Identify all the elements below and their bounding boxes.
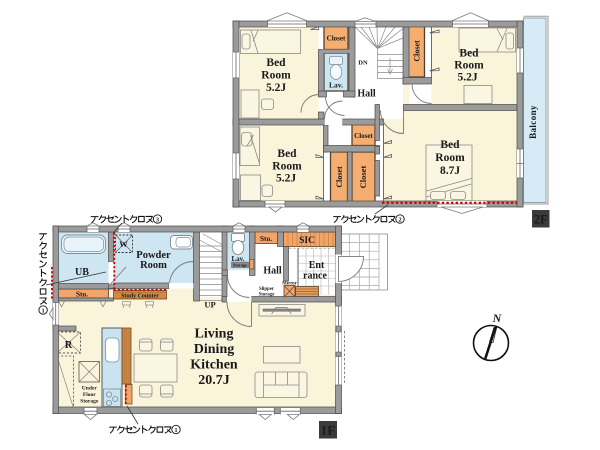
svg-text:Kitchen: Kitchen bbox=[190, 358, 238, 373]
svg-text:Room: Room bbox=[272, 161, 302, 173]
svg-text:5.2J: 5.2J bbox=[266, 82, 286, 94]
svg-text:Ent: Ent bbox=[309, 260, 325, 271]
svg-text:DN: DN bbox=[358, 60, 368, 67]
svg-text:Room: Room bbox=[140, 260, 167, 271]
svg-text:2F: 2F bbox=[534, 213, 548, 227]
svg-text:1F: 1F bbox=[321, 423, 336, 438]
svg-text:Hall: Hall bbox=[263, 266, 282, 277]
svg-text:Closet: Closet bbox=[354, 132, 373, 140]
svg-text:1: 1 bbox=[174, 427, 177, 434]
svg-text:Sto.: Sto. bbox=[76, 289, 88, 298]
svg-text:Living: Living bbox=[195, 327, 234, 342]
svg-text:Closet: Closet bbox=[358, 166, 368, 189]
svg-text:Dining: Dining bbox=[194, 342, 234, 357]
svg-text:8.7J: 8.7J bbox=[440, 165, 460, 177]
svg-text:Storage: Storage bbox=[80, 399, 99, 405]
svg-text:Balcony: Balcony bbox=[528, 105, 538, 139]
svg-text:Floor: Floor bbox=[83, 392, 96, 398]
svg-text:Study Counter: Study Counter bbox=[121, 293, 159, 299]
svg-text:Bed: Bed bbox=[266, 57, 286, 69]
svg-text:Room: Room bbox=[261, 70, 291, 82]
svg-text:Bed: Bed bbox=[277, 148, 297, 160]
svg-text:N: N bbox=[492, 311, 503, 325]
svg-text:5.2J: 5.2J bbox=[276, 173, 296, 185]
svg-text:Room: Room bbox=[435, 152, 465, 164]
svg-text:Slipper: Slipper bbox=[259, 287, 275, 292]
svg-text:Bed: Bed bbox=[440, 139, 460, 151]
svg-text:SIC: SIC bbox=[299, 236, 315, 246]
svg-text:W: W bbox=[119, 239, 128, 249]
svg-text:UP: UP bbox=[204, 300, 215, 310]
svg-text:Bed: Bed bbox=[459, 48, 479, 60]
svg-text:Closet: Closet bbox=[327, 35, 346, 43]
svg-text:Sto.: Sto. bbox=[260, 234, 272, 243]
svg-text:20.7J: 20.7J bbox=[198, 373, 230, 388]
svg-text:5.2J: 5.2J bbox=[457, 72, 477, 84]
svg-text:R: R bbox=[65, 340, 73, 351]
svg-text:2: 2 bbox=[398, 216, 401, 223]
svg-text:Hall: Hall bbox=[357, 89, 376, 100]
svg-text:Lav.: Lav. bbox=[329, 81, 343, 90]
svg-text:rance: rance bbox=[303, 271, 327, 282]
svg-text:Closet: Closet bbox=[413, 40, 422, 62]
svg-text:Room: Room bbox=[454, 60, 484, 72]
svg-text:Closet: Closet bbox=[335, 166, 344, 188]
svg-text:1: 1 bbox=[41, 307, 44, 314]
svg-text:Storage: Storage bbox=[233, 263, 247, 268]
svg-text:Under: Under bbox=[82, 386, 98, 392]
